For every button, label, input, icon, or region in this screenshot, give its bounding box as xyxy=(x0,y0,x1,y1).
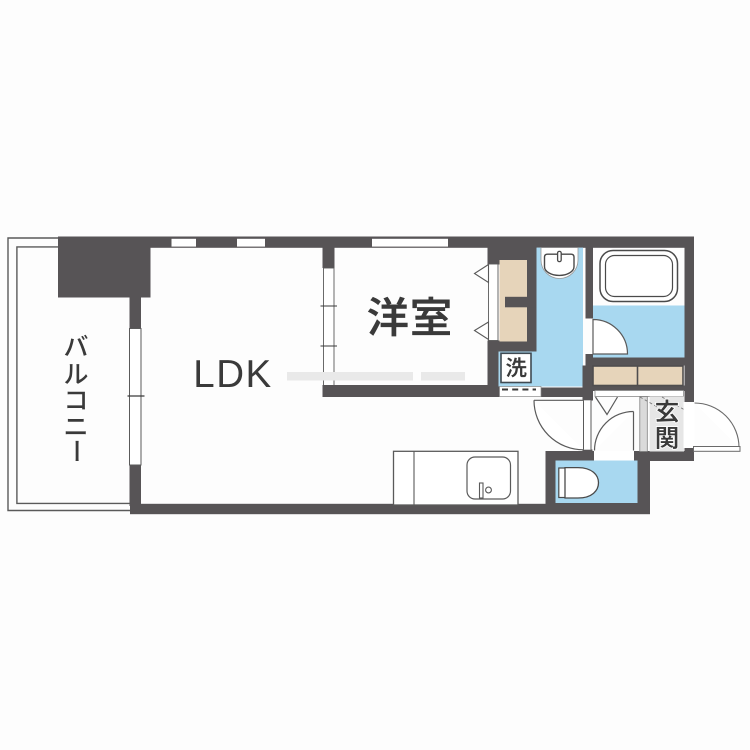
svg-text:LDK: LDK xyxy=(193,353,272,396)
